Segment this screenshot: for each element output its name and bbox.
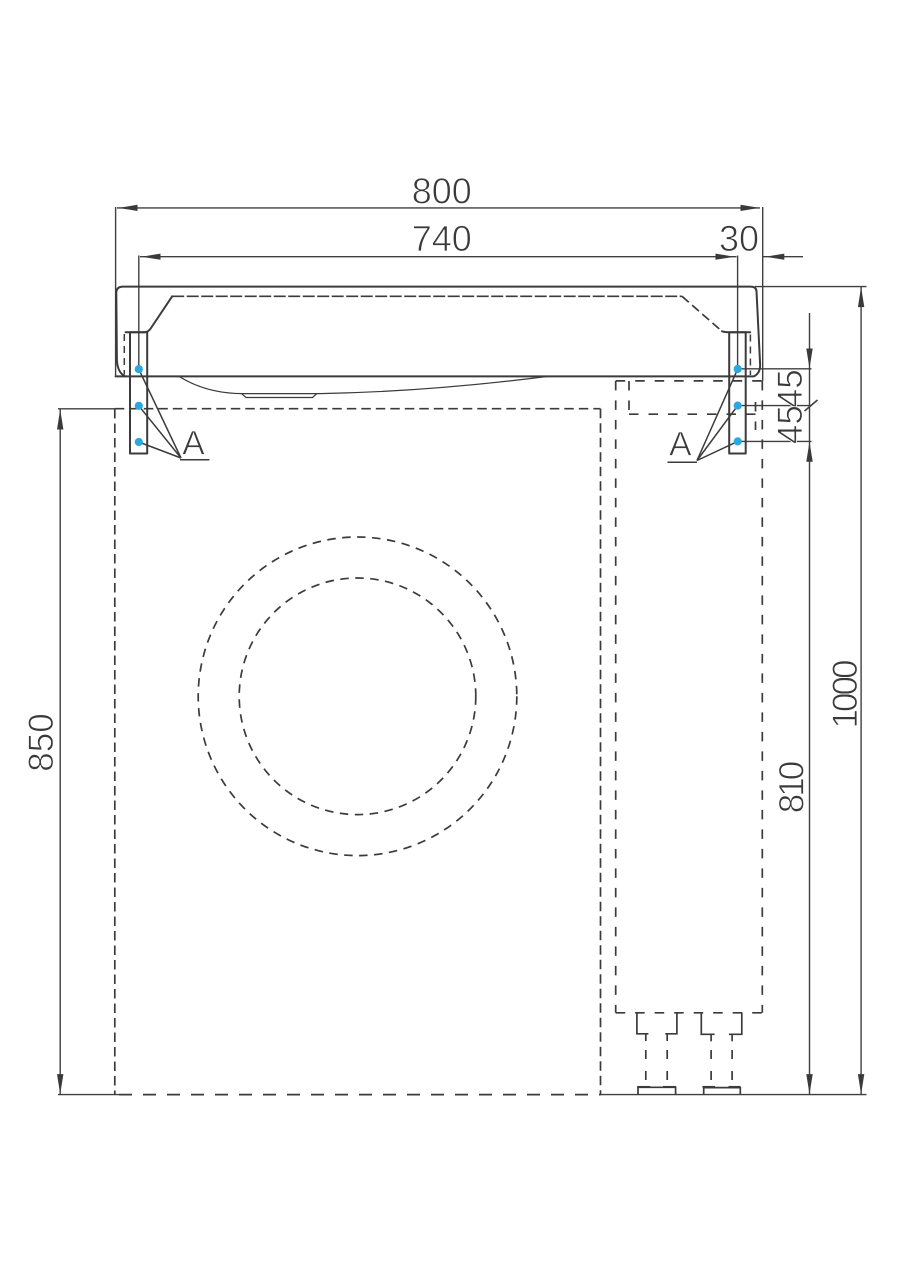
- svg-text:850: 850: [22, 713, 61, 771]
- svg-text:1000: 1000: [826, 660, 865, 728]
- svg-text:45: 45: [771, 405, 810, 444]
- svg-text:800: 800: [412, 171, 472, 212]
- svg-text:A: A: [669, 426, 692, 464]
- svg-text:A: A: [182, 425, 205, 463]
- svg-text:45: 45: [771, 369, 810, 408]
- svg-text:810: 810: [773, 761, 812, 813]
- svg-text:30: 30: [719, 218, 759, 259]
- svg-text:740: 740: [412, 218, 472, 259]
